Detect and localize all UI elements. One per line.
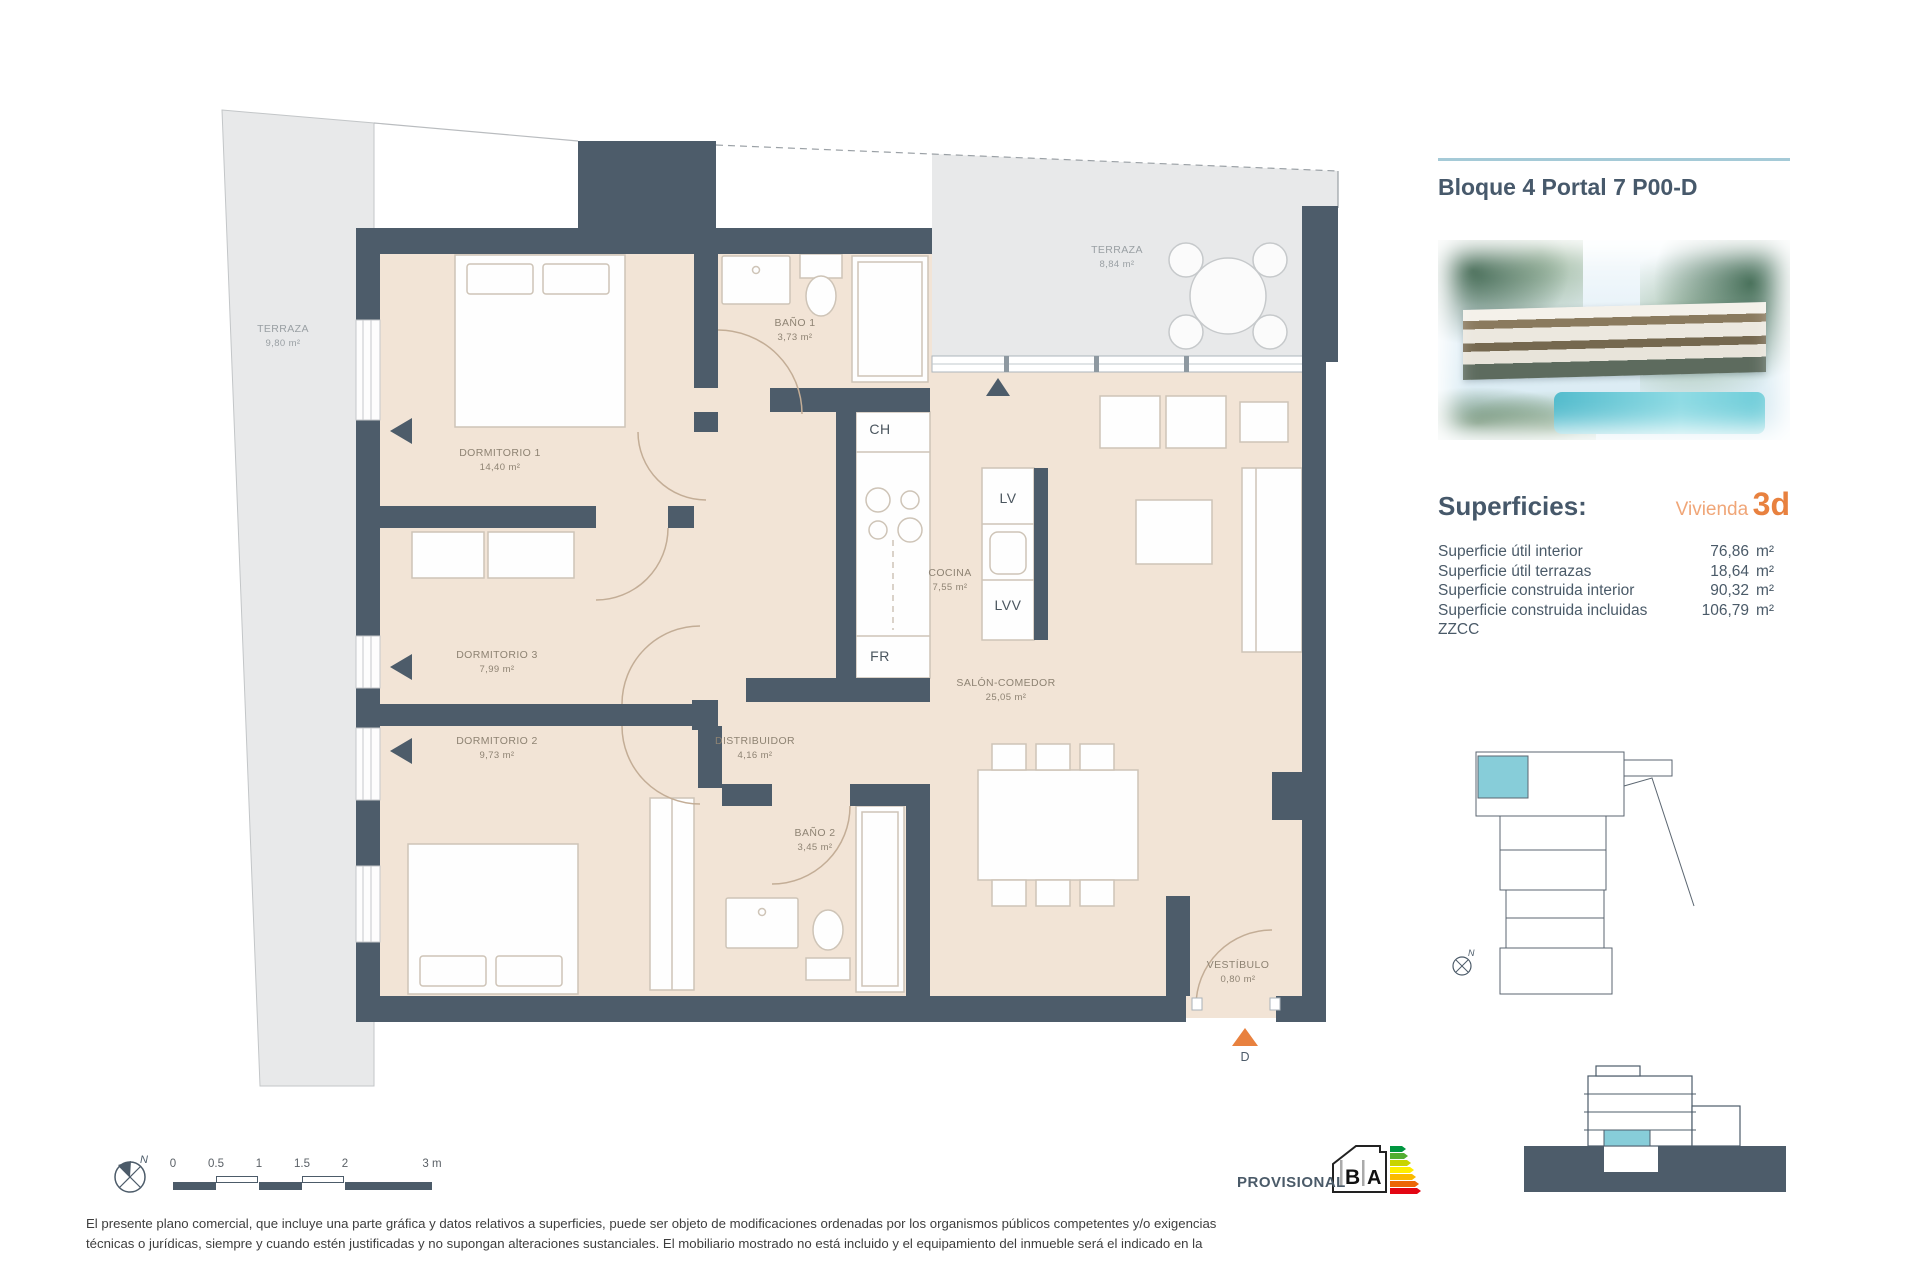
superficies-header: Superficies: Vivienda 3d bbox=[1438, 486, 1790, 523]
row-value: 106,79 bbox=[1691, 601, 1749, 640]
plan-sheet: N N bbox=[0, 0, 1920, 1280]
superficies-row: Superficie construida incluidas ZZCC 106… bbox=[1438, 601, 1790, 640]
room-area: 3,73 m² bbox=[775, 331, 816, 344]
superficies-row: Superficie construida interior 90,32 m² bbox=[1438, 581, 1790, 601]
scale-bar-segment bbox=[216, 1176, 258, 1183]
scale-tick: 0.5 bbox=[208, 1158, 224, 1170]
room-name: DORMITORIO 3 bbox=[456, 649, 538, 661]
scale-bar-segment bbox=[259, 1182, 302, 1190]
row-label: Superficie construida incluidas ZZCC bbox=[1438, 601, 1691, 640]
scale-tick: 0 bbox=[170, 1158, 176, 1170]
vivienda-tag: Vivienda 3d bbox=[1676, 486, 1790, 523]
room-area: 0,80 m² bbox=[1207, 973, 1270, 986]
row-value: 76,86 bbox=[1691, 542, 1749, 562]
room-name: BAÑO 2 bbox=[795, 827, 836, 839]
room-area: 9,73 m² bbox=[456, 749, 538, 762]
minimap-compass-n: N bbox=[1468, 948, 1475, 958]
site-plan-mini: N bbox=[1453, 752, 1694, 994]
scale-bar-segment bbox=[302, 1176, 344, 1183]
row-value: 90,32 bbox=[1691, 581, 1749, 601]
appliance-label-lvv: LVV bbox=[995, 597, 1022, 613]
page-title: Bloque 4 Portal 7 P00-D bbox=[1438, 174, 1697, 201]
row-label: Superficie construida interior bbox=[1438, 581, 1691, 601]
room-name: DORMITORIO 2 bbox=[456, 735, 538, 747]
entrance-letter-d: D bbox=[1240, 1050, 1249, 1064]
room-area: 25,05 m² bbox=[956, 691, 1055, 704]
energy-letter-a: A bbox=[1367, 1167, 1381, 1189]
superficies-row: Superficie útil interior 76,86 m² bbox=[1438, 542, 1790, 562]
room-label-dormitorio-3: DORMITORIO 3 7,99 m² bbox=[456, 648, 538, 676]
row-unit: m² bbox=[1749, 601, 1790, 640]
row-label: Superficie útil terrazas bbox=[1438, 562, 1691, 582]
entrance-marker bbox=[1232, 1028, 1258, 1046]
room-label-terraza-left: TERRAZA 9,80 m² bbox=[257, 322, 309, 350]
room-name: TERRAZA bbox=[257, 323, 309, 335]
room-name: VESTÍBULO bbox=[1207, 959, 1270, 971]
superficies-row: Superficie útil terrazas 18,64 m² bbox=[1438, 562, 1790, 582]
room-name: DORMITORIO 1 bbox=[459, 447, 541, 459]
row-value: 18,64 bbox=[1691, 562, 1749, 582]
appliance-label-fr: FR bbox=[870, 648, 890, 664]
scale-tick: 1 bbox=[256, 1158, 262, 1170]
disclaimer-line-2: técnicas o jurídicas, siempre y cuando e… bbox=[86, 1234, 1296, 1254]
scale-tick: 2 bbox=[342, 1158, 348, 1170]
room-label-bano-1: BAÑO 1 3,73 m² bbox=[775, 316, 816, 344]
glass-wall bbox=[932, 356, 1304, 372]
appliance-label-ch: CH bbox=[869, 421, 890, 437]
room-name: BAÑO 1 bbox=[775, 317, 816, 329]
energy-rating-icon: B A bbox=[1333, 1146, 1421, 1194]
vivienda-code: 3d bbox=[1753, 486, 1790, 522]
compass-n-label: N bbox=[140, 1154, 148, 1166]
disclaimer-text: El presente plano comercial, que incluye… bbox=[86, 1214, 1296, 1255]
superficies-table: Superficie útil interior 76,86 m² Superf… bbox=[1438, 542, 1790, 640]
room-name: DISTRIBUIDOR bbox=[715, 735, 795, 747]
room-area: 7,99 m² bbox=[456, 663, 538, 676]
room-label-vestibulo: VESTÍBULO 0,80 m² bbox=[1207, 958, 1270, 986]
room-label-cocina: COCINA 7,55 m² bbox=[928, 566, 971, 594]
scale-tick: 3 m bbox=[422, 1158, 441, 1170]
energy-arrows bbox=[1390, 1146, 1421, 1194]
row-label: Superficie útil interior bbox=[1438, 542, 1691, 562]
room-label-terraza-top: TERRAZA 8,84 m² bbox=[1091, 243, 1143, 271]
room-name: COCINA bbox=[928, 567, 971, 579]
room-area: 3,45 m² bbox=[795, 841, 836, 854]
vivienda-label: Vivienda bbox=[1676, 499, 1749, 520]
room-name: TERRAZA bbox=[1091, 244, 1143, 256]
room-label-bano-2: BAÑO 2 3,45 m² bbox=[795, 826, 836, 854]
scale-bar-segment bbox=[173, 1182, 216, 1190]
row-unit: m² bbox=[1749, 542, 1790, 562]
panel-divider-rule bbox=[1438, 158, 1790, 161]
room-area: 4,16 m² bbox=[715, 749, 795, 762]
superficies-heading: Superficies: bbox=[1438, 491, 1587, 522]
scale-bar-segment bbox=[345, 1182, 432, 1190]
room-label-dormitorio-1: DORMITORIO 1 14,40 m² bbox=[459, 446, 541, 474]
room-area: 7,55 m² bbox=[928, 581, 971, 594]
disclaimer-line-1: El presente plano comercial, que incluye… bbox=[86, 1214, 1296, 1234]
room-name: SALÓN-COMEDOR bbox=[956, 677, 1055, 689]
section-diagram bbox=[1524, 1066, 1786, 1192]
room-label-distribuidor: DISTRIBUIDOR 4,16 m² bbox=[715, 734, 795, 762]
room-area: 8,84 m² bbox=[1091, 258, 1143, 271]
appliance-label-lv: LV bbox=[999, 490, 1016, 506]
render-watercolor-wash bbox=[1438, 240, 1790, 440]
room-label-dormitorio-2: DORMITORIO 2 9,73 m² bbox=[456, 734, 538, 762]
room-area: 14,40 m² bbox=[459, 461, 541, 474]
room-area: 9,80 m² bbox=[257, 337, 309, 350]
building-render bbox=[1438, 240, 1790, 440]
row-unit: m² bbox=[1749, 581, 1790, 601]
scale-tick: 1.5 bbox=[294, 1158, 310, 1170]
row-unit: m² bbox=[1749, 562, 1790, 582]
north-compass-icon: N bbox=[115, 1154, 148, 1192]
room-label-salon-comedor: SALÓN-COMEDOR 25,05 m² bbox=[956, 676, 1055, 704]
energy-letter-b: B bbox=[1345, 1166, 1360, 1189]
provisional-label: PROVISIONAL bbox=[1237, 1174, 1346, 1191]
